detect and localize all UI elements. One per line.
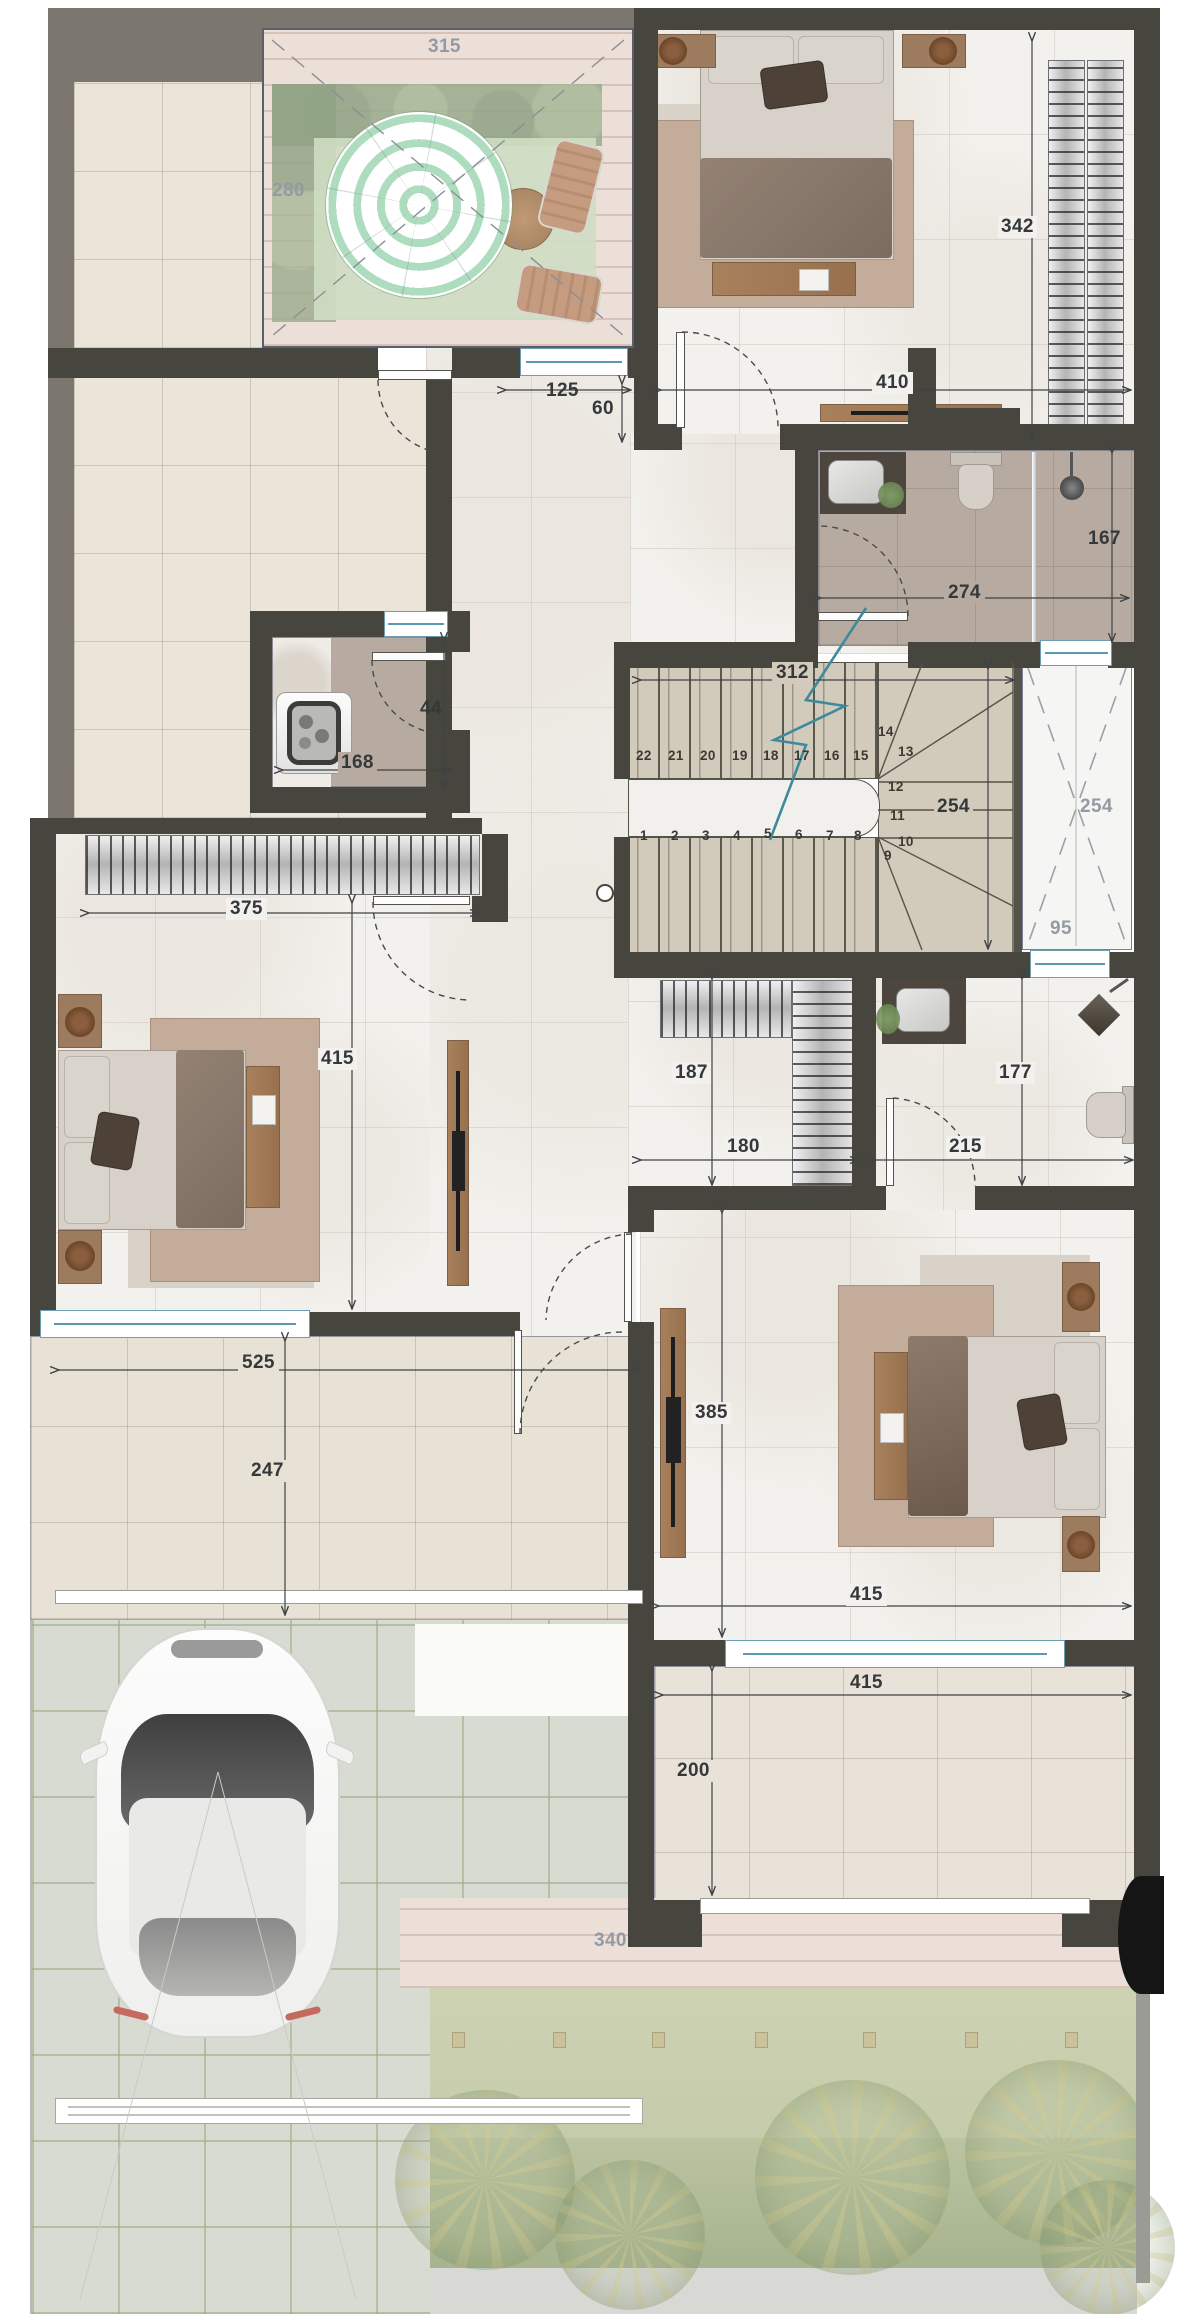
step-number: 22 (636, 748, 652, 763)
step-number: 17 (794, 748, 810, 763)
gate-strip (55, 2098, 643, 2124)
bed2-tv-panel (447, 1040, 469, 1286)
step-number: 2 (671, 828, 679, 843)
wall (452, 348, 520, 378)
car-sunroof (171, 1640, 263, 1658)
garden-light (1065, 2032, 1078, 2048)
bath2-toilet (1086, 1086, 1134, 1144)
bath1-shower-glass (1032, 452, 1036, 644)
dim-shaft-width: 95 (1050, 918, 1072, 940)
dim-stairs-height: 254 (934, 796, 973, 818)
wall (634, 28, 658, 424)
wall (1108, 642, 1136, 668)
step-number: 3 (702, 828, 710, 843)
wall (908, 642, 1040, 668)
bath2-sink (896, 988, 950, 1032)
step-number: 21 (668, 748, 684, 763)
bath1-toilet (950, 452, 1002, 512)
bed1-nightstand-left (652, 34, 716, 68)
wall (852, 978, 876, 1186)
bed-2 (58, 1050, 244, 1228)
step-number: 8 (854, 828, 862, 843)
walk-pad (415, 1624, 645, 1716)
edge-shrub (1118, 1876, 1164, 1994)
wall (1065, 1640, 1136, 1666)
stairs-landing (628, 779, 880, 837)
dim-bed2-height: 415 (318, 1048, 357, 1070)
dim-bath1-height: 167 (1088, 528, 1121, 550)
wall (975, 1186, 1136, 1210)
wall (30, 818, 482, 834)
porch (30, 1336, 645, 1620)
stairs-upper-run (628, 662, 878, 779)
palm-tree (755, 2080, 950, 2275)
dim-deck-width: 340 (594, 1930, 627, 1952)
dim-bath2-height: 177 (996, 1062, 1035, 1084)
step-number: 10 (898, 834, 914, 849)
wall (654, 1640, 725, 1666)
dim-wardrobe-width: 375 (226, 898, 267, 920)
bath1-vanity (820, 452, 906, 514)
shaft-void (1022, 662, 1132, 950)
wall (446, 730, 470, 787)
step-number: 5 (764, 826, 772, 841)
wall (30, 818, 56, 1336)
step-number: 18 (763, 748, 779, 763)
wall (908, 408, 1020, 434)
car (95, 1628, 340, 2038)
fence-right (1136, 1948, 1150, 2283)
dim-stairs-width: 312 (772, 662, 813, 684)
dim-bath1-width: 274 (944, 582, 985, 604)
closet-wardrobe-right (792, 980, 856, 1186)
bath1-plant (878, 482, 904, 508)
dim-porch-height: 247 (248, 1460, 287, 1482)
garden-light (755, 2032, 768, 2048)
garden-light (553, 2032, 566, 2048)
wall (1110, 952, 1136, 978)
bed-3 (908, 1336, 1104, 1516)
bed2-nightstand-bottom (58, 1230, 102, 1284)
step-number: 11 (890, 808, 905, 823)
garden-light (965, 2032, 978, 2048)
wall (878, 1186, 886, 1210)
garden-light (863, 2032, 876, 2048)
bed3-bench (874, 1352, 908, 1500)
dim-balcony-width: 415 (846, 1672, 887, 1694)
wall (628, 1900, 702, 1947)
bed3-window (725, 1640, 1065, 1668)
step-number: 1 (640, 828, 648, 843)
wall (614, 642, 630, 779)
dim-niche-depth: 60 (592, 398, 614, 420)
garden-light (452, 2032, 465, 2048)
bed1-bench (712, 262, 856, 296)
floor-plan: 315 280 125 60 410 342 274 167 312 254 2… (0, 0, 1177, 2314)
step-number: 14 (878, 724, 894, 739)
wall (628, 1186, 878, 1210)
bedroom3-door (624, 1232, 632, 1322)
wall (310, 1312, 520, 1336)
bath1-shower-arm (1070, 452, 1073, 480)
stairs-shaft-divider (1015, 662, 1022, 952)
garden-light (652, 2032, 665, 2048)
courtyard-door (378, 370, 452, 380)
step-number: 13 (898, 744, 914, 759)
step-number: 15 (853, 748, 869, 763)
dim-patio-width: 315 (428, 36, 461, 58)
bath2-plant (876, 1004, 900, 1034)
dim-shaft-height: 254 (1080, 796, 1113, 818)
wall (634, 424, 682, 450)
wall (1134, 8, 1160, 1948)
side-yard (74, 82, 262, 348)
stairs-lower-run (628, 837, 878, 955)
bath2-vanity (882, 978, 966, 1044)
patio-umbrella (326, 112, 512, 298)
wall (48, 348, 378, 378)
hall-window (520, 348, 628, 376)
bathroom1-door (818, 612, 908, 621)
garden-bottom-strip (430, 2268, 1137, 2314)
wall (250, 611, 272, 813)
step-number: 4 (733, 828, 741, 843)
outer-wall-band-left (48, 82, 74, 834)
dim-bed3-width: 415 (846, 1584, 887, 1606)
laundry-window (384, 611, 448, 637)
step-number: 20 (700, 748, 716, 763)
palm-tree (555, 2160, 705, 2310)
step-number: 16 (824, 748, 840, 763)
dim-bed1-width: 410 (872, 372, 913, 394)
dim-laundry-width: 168 (338, 752, 377, 774)
step-number: 9 (884, 848, 892, 863)
wall (628, 1210, 654, 1232)
wall (614, 952, 1030, 978)
bathroom2-door (886, 1098, 894, 1186)
dim-balcony-height: 200 (674, 1760, 713, 1782)
step-number: 7 (826, 828, 834, 843)
wall (795, 450, 818, 648)
patio (262, 28, 634, 348)
bed3-nightstand-top (1062, 1262, 1100, 1332)
step-number: 19 (732, 748, 748, 763)
step-number: 6 (795, 827, 803, 842)
wall (250, 787, 470, 813)
dim-bath2-width: 215 (946, 1136, 985, 1158)
dim-closet-height: 187 (672, 1062, 711, 1084)
car-rear-window (139, 1918, 296, 1996)
wall (482, 834, 508, 922)
bed3-tv-panel (660, 1308, 686, 1558)
bath1-sink (828, 460, 884, 504)
bedroom1-door (676, 332, 685, 428)
bedroom2-door (373, 896, 470, 905)
bed2-bench (246, 1066, 280, 1208)
front-door (514, 1330, 522, 1434)
porch-threshold (55, 1590, 643, 1604)
bed2-nightstand-top (58, 994, 102, 1048)
palm-tree (1040, 2180, 1175, 2314)
bed2-wardrobe (85, 835, 480, 895)
shaft-window-bottom (1030, 950, 1110, 978)
bed-1 (700, 30, 892, 258)
wall (628, 1322, 654, 1947)
closet-wardrobe-top (660, 980, 792, 1038)
wall (634, 8, 1136, 30)
stairs-knob-symbol (596, 884, 614, 902)
balcony-threshold (700, 1898, 1090, 1914)
shaft-window-top (1040, 640, 1112, 666)
dim-hall-window: 125 (546, 380, 579, 402)
dim-bed3-height: 385 (692, 1402, 731, 1424)
dim-porch-width: 525 (238, 1352, 279, 1374)
dim-closet-width: 180 (724, 1136, 763, 1158)
wall (628, 348, 636, 378)
bed1-nightstand-right (902, 34, 966, 68)
laundry-door (372, 652, 446, 661)
step-number: 12 (888, 779, 904, 794)
dim-bed1-height: 342 (998, 216, 1037, 238)
wall (614, 837, 630, 956)
dim-laundry-depth: 44 (420, 698, 442, 720)
bed1-wardrobe (1048, 60, 1124, 442)
dim-patio-height: 280 (272, 180, 305, 202)
bed2-window (40, 1310, 310, 1338)
wall (446, 611, 470, 652)
bed3-nightstand-bottom (1062, 1516, 1100, 1572)
